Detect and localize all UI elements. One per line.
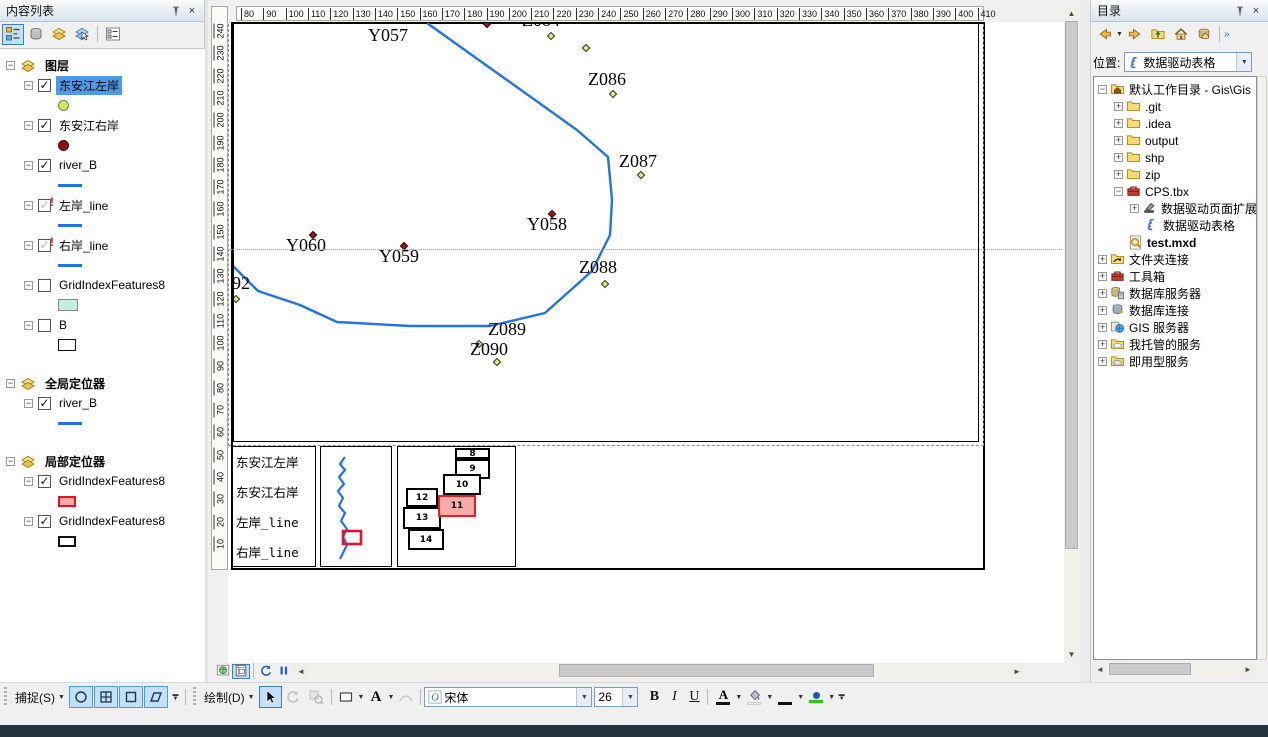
ruler-tick: 360 (866, 8, 884, 20)
vertex-snapping-toggle[interactable] (119, 686, 143, 708)
layer-symbol-row (0, 175, 205, 195)
grid-index-box[interactable]: 891012131411 (397, 446, 516, 567)
chevron-down-icon[interactable]: ▼ (622, 688, 637, 706)
rectangle-tool[interactable] (335, 686, 358, 708)
catalog-item-label[interactable]: 文件夹连接 (1129, 251, 1189, 268)
scroll-up-icon[interactable]: ▲ (1064, 6, 1079, 20)
collapse-icon[interactable]: − (1098, 85, 1107, 94)
grid-index-cell[interactable]: 8 (455, 448, 490, 459)
ruler-tick: 160 (214, 202, 226, 217)
catalog-item-label[interactable]: 即用型服务 (1129, 353, 1189, 370)
catalog-item-label[interactable]: test.mxd (1147, 236, 1196, 250)
zoom-to-selected-tool[interactable] (305, 686, 328, 708)
map-point-label: Y060 (286, 235, 326, 256)
cloud2-icon (1110, 354, 1126, 369)
catalog-item-label[interactable]: CPS.tbx (1145, 185, 1189, 199)
catalog-item[interactable]: +zip (1094, 166, 1256, 183)
grid-index-cell[interactable]: 10 (443, 474, 481, 495)
symbol-blue-line[interactable] (58, 184, 82, 187)
expand-icon[interactable]: + (1098, 323, 1107, 332)
collapse-icon[interactable]: − (24, 321, 33, 330)
map-bottom-bar: ◄ ► (208, 663, 1064, 679)
status-bar (0, 711, 1268, 725)
layout-page[interactable]: Y057Z084Z086Z087Y058Y060Y059Z088092Z089Z… (228, 22, 1064, 663)
svg-text:O: O (432, 693, 440, 704)
layers-group-icon (20, 58, 38, 72)
toc-layer-label[interactable]: 东安江左岸 (56, 76, 122, 95)
toc-group-1[interactable]: − 全局定位器 (0, 373, 205, 393)
folder-link-icon (1110, 252, 1126, 267)
toolbox-icon (1110, 269, 1126, 284)
folder-icon (1126, 150, 1142, 165)
catalog-item[interactable]: +数据驱动页面扩展 (1094, 200, 1256, 217)
toolbar-grip[interactable] (3, 687, 8, 707)
ruler-tick: 110 (214, 313, 226, 328)
toolbar-options-icon[interactable]: ▬▼ (835, 686, 848, 708)
expand-icon[interactable]: + (1098, 289, 1107, 298)
ruler-tick: 130 (214, 269, 226, 284)
collapse-icon[interactable]: − (24, 477, 33, 486)
collapse-icon[interactable]: − (24, 281, 33, 290)
ruler-tick: 220 (214, 68, 226, 83)
symbol-cyan-rect[interactable] (58, 299, 78, 311)
catalog-item-label[interactable]: .git (1145, 100, 1161, 114)
legend-entry: 右岸_line (236, 542, 312, 561)
layer-visibility-checkbox[interactable]: ✓ (38, 475, 51, 488)
catalog-item-label[interactable]: 工具箱 (1129, 268, 1165, 285)
toc-layer-row[interactable]: − ✓右岸_line (0, 235, 205, 255)
collapse-icon[interactable]: − (1114, 187, 1123, 196)
expand-icon[interactable]: + (1098, 272, 1107, 281)
collapse-icon[interactable]: − (6, 457, 15, 466)
ruler-tick: 140 (214, 247, 226, 262)
symbol-pink-rect[interactable] (58, 496, 76, 507)
toolbox-icon (1126, 184, 1142, 199)
catalog-item-label[interactable]: shp (1145, 151, 1164, 165)
ruler-tick: 100 (214, 336, 226, 351)
vertical-ruler: 2402302202102001901801701601501401301201… (211, 6, 228, 570)
map-point-label: 092 (234, 273, 250, 294)
catalog-item-label[interactable]: .idea (1145, 117, 1171, 131)
ruler-tick: 370 (888, 8, 906, 20)
font-color-dropdown-icon[interactable]: ▼ (735, 694, 742, 701)
toc-layer-label[interactable]: 右岸_line (56, 236, 111, 255)
ruler-tick: 70 (214, 403, 226, 418)
toc-layer-label[interactable]: GridIndexFeatures8 (56, 513, 168, 529)
end-snapping-toggle[interactable] (94, 686, 118, 708)
font-name: 宋体 (442, 689, 576, 706)
collapse-icon[interactable]: − (24, 201, 33, 210)
layer-visibility-checkbox[interactable]: ✓ (38, 119, 51, 132)
catalog-panel: 目录 × ▼ » 位置: 数据驱动表格 ▼ −默认工作目录 - Gis\Gis+… (1090, 0, 1268, 682)
expand-icon[interactable]: + (1114, 170, 1123, 179)
symbol-green-dot[interactable] (58, 100, 69, 111)
rotate-tool[interactable] (282, 686, 305, 708)
ruler-tick: 210 (531, 8, 549, 20)
toc-layer-label[interactable]: 东安江右岸 (56, 116, 122, 135)
ruler-tick: 240 (598, 8, 616, 20)
font-color-button[interactable]: A (711, 686, 735, 708)
toc-layer-row[interactable]: − ✓东安江左岸 (0, 75, 205, 95)
marker-color-button[interactable] (804, 686, 828, 708)
horizontal-ruler: 8090100110120130140150160170180190200210… (236, 6, 984, 21)
ruler-tick: 380 (911, 8, 929, 20)
ruler-tick: 200 (509, 8, 527, 20)
up-one-level-button[interactable] (1147, 24, 1169, 45)
catalog-vertical-scrollbar[interactable] (1257, 76, 1267, 660)
catalog-item[interactable]: +数据库服务器 (1094, 285, 1256, 302)
toc-group-label: 局部定位器 (42, 452, 108, 471)
catalog-tree: −默认工作目录 - Gis\Gis+.git+.idea+output+shp+… (1093, 76, 1257, 660)
layer-visibility-checkbox[interactable]: ✓ (38, 239, 51, 252)
ruler-tick: 90 (263, 8, 276, 20)
data-view-button[interactable] (214, 664, 232, 679)
font-size-combo[interactable]: 26 ▼ (594, 687, 638, 707)
italic-button[interactable]: I (664, 687, 684, 707)
toc-header: 内容列表 × (0, 0, 204, 22)
ruler-tick: 230 (214, 46, 226, 61)
ruler-tick: 170 (442, 8, 460, 20)
catalog-item[interactable]: +GIS 服务器 (1094, 319, 1256, 336)
layer-visibility-checkbox[interactable]: ✓ (38, 159, 51, 172)
toc-layer-row[interactable]: − ✓river_B (0, 155, 205, 175)
ruler-tick: 180 (214, 157, 226, 172)
back-button[interactable] (1093, 24, 1115, 45)
layer-symbol-row (0, 135, 205, 155)
catalog-item[interactable]: +数据库连接 (1094, 302, 1256, 319)
chevron-down-icon[interactable]: ▼ (1236, 53, 1251, 71)
collapse-icon[interactable]: − (24, 517, 33, 526)
toc-layer-label[interactable]: river_B (56, 157, 100, 173)
layer-visibility-checkbox[interactable]: ✓ (38, 397, 51, 410)
vscroll-thumb[interactable] (1065, 21, 1078, 549)
legend-box[interactable]: 东安江左岸东安江右岸左岸_line右岸_line (232, 446, 316, 567)
scroll-right-icon[interactable]: ► (1009, 664, 1025, 678)
snapping-menu-button[interactable]: 捕捉(S)▼ (11, 687, 69, 708)
scroll-left-icon[interactable]: ◄ (293, 664, 309, 678)
list-by-drawing-order-button[interactable] (2, 24, 24, 45)
collapse-icon[interactable]: − (24, 81, 33, 90)
db-server-icon (1110, 286, 1126, 301)
collapse-icon[interactable]: − (24, 241, 33, 250)
legend-entry: 东安江左岸 (236, 452, 312, 471)
ruler-tick: 190 (487, 8, 505, 20)
scroll-right-icon[interactable]: ► (1241, 663, 1255, 676)
map-point-label: Z086 (588, 69, 626, 90)
toc-layer-label[interactable]: 左岸_line (56, 196, 111, 215)
layer-symbol-row (0, 413, 205, 433)
db-connect-icon (1110, 303, 1126, 318)
toolbar-options-icon[interactable]: ▬▼ (169, 686, 182, 708)
location-label: 位置: (1093, 54, 1120, 71)
toc-layer-label[interactable]: GridIndexFeatures8 (56, 277, 168, 293)
back-dropdown-icon[interactable]: ▼ (1116, 31, 1123, 38)
expand-icon[interactable]: + (1098, 306, 1107, 315)
drawing-menu-button[interactable]: 绘制(D)▼ (200, 687, 259, 708)
ruler-tick: 230 (576, 8, 594, 20)
expand-icon[interactable]: + (1114, 136, 1123, 145)
expand-icon[interactable]: + (1098, 255, 1107, 264)
pause-drawing-button[interactable] (275, 664, 293, 679)
window-bottom-strip (0, 725, 1268, 737)
map-point-label: Z089 (488, 319, 526, 340)
ruler-tick: 10 (214, 536, 226, 551)
catalog-item[interactable]: −CPS.tbx (1094, 183, 1256, 200)
ruler-tick: 210 (214, 90, 226, 105)
ruler-tick: 180 (464, 8, 482, 20)
ruler-tick: 100 (286, 8, 304, 20)
ruler-tick: 140 (375, 8, 393, 20)
symbol-darkred-dot[interactable] (58, 140, 69, 151)
select-elements-tool[interactable] (259, 686, 282, 708)
ruler-tick: 190 (214, 135, 226, 150)
catalog-item-label[interactable]: 数据库服务器 (1129, 285, 1201, 302)
font-combo[interactable]: O 宋体 ▼ (424, 687, 592, 707)
close-icon[interactable]: × (1248, 3, 1264, 19)
toc-panel: 内容列表 × − 图层− ✓东安江左岸− ✓东安江右岸− ✓river_B− ✓… (0, 0, 205, 682)
collapse-icon[interactable]: − (24, 121, 33, 130)
grid-index-cell[interactable]: 13 (403, 507, 441, 529)
ruler-tick: 340 (821, 8, 839, 20)
folder-icon (1126, 167, 1142, 182)
expand-icon[interactable]: + (1098, 340, 1107, 349)
curve-tool[interactable] (394, 686, 417, 708)
catalog-item[interactable]: −默认工作目录 - Gis\Gis (1094, 81, 1256, 98)
text-tool-dropdown-icon[interactable]: ▼ (387, 694, 394, 701)
symbol-black-rect[interactable] (58, 536, 76, 547)
scroll-down-icon[interactable]: ▼ (1064, 647, 1079, 661)
toc-layer-row[interactable]: − B (0, 315, 205, 335)
ruler-tick: 250 (620, 8, 638, 20)
point-snapping-toggle[interactable] (69, 686, 93, 708)
collapse-icon[interactable]: − (6, 61, 15, 70)
options-button[interactable] (102, 24, 124, 45)
collapse-icon[interactable]: − (24, 161, 33, 170)
toc-layer-row[interactable]: − ✓GridIndexFeatures8 (0, 511, 205, 531)
toc-group-0[interactable]: − 图层 (0, 55, 205, 75)
toc-layer-row[interactable]: − ✓东安江右岸 (0, 115, 205, 135)
panel-splitter-right[interactable] (1080, 0, 1090, 682)
underline-button[interactable]: U (684, 687, 704, 707)
ruler-tick: 150 (214, 224, 226, 239)
catalog-item-label[interactable]: 数据库连接 (1129, 302, 1189, 319)
draw-snapping-toolbar: 捕捉(S)▼ ▬▼ 绘制(D)▼ ▼ A ▼ O 宋体 ▼ 26 ▼ B I U… (0, 682, 1268, 711)
catalog-item[interactable]: +.idea (1094, 115, 1256, 132)
marker-color-dropdown-icon[interactable]: ▼ (828, 694, 835, 701)
line-color-dropdown-icon[interactable]: ▼ (797, 694, 804, 701)
home-button[interactable] (1170, 24, 1192, 45)
toc-layer-label[interactable]: GridIndexFeatures8 (56, 473, 168, 489)
ruler-tick: 160 (420, 8, 438, 20)
map-point-label: Y058 (527, 214, 567, 235)
layer-symbol-row (0, 335, 205, 355)
catalog-item[interactable]: +工具箱 (1094, 268, 1256, 285)
symbol-white-rect[interactable] (58, 339, 76, 351)
layer-symbol-row (0, 215, 205, 235)
map-point-label: Z087 (619, 151, 657, 172)
layer-symbol-row (0, 255, 205, 275)
ruler-tick: 90 (214, 358, 226, 373)
ruler-tick: 220 (553, 8, 571, 20)
grid-index-cell[interactable]: 11 (438, 495, 476, 517)
catalog-item[interactable]: +output (1094, 132, 1256, 149)
folder-home-icon (1110, 82, 1126, 97)
ruler-tick: 150 (397, 8, 415, 20)
scroll-icon (1144, 218, 1160, 233)
ruler-tick: 260 (643, 8, 661, 20)
grid-index-cell[interactable]: 14 (408, 529, 444, 550)
pin-icon[interactable] (168, 3, 184, 19)
ruler-tick: 200 (214, 113, 226, 128)
toc-group-label: 全局定位器 (42, 374, 108, 393)
ruler-tick: 310 (754, 8, 772, 20)
ruler-tick: 170 (214, 180, 226, 195)
grid-index-cell[interactable]: 12 (406, 488, 438, 507)
catalog-item-label[interactable]: 我托管的服务 (1129, 336, 1201, 353)
toc-layer-label[interactable]: river_B (56, 395, 100, 411)
catalog-item[interactable]: +.git (1094, 98, 1256, 115)
catalog-item-label[interactable]: 数据驱动页面扩展 (1161, 200, 1257, 217)
location-value: 数据驱动表格 (1143, 54, 1236, 71)
expand-icon[interactable]: + (1098, 357, 1107, 366)
location-combo[interactable]: 数据驱动表格 ▼ (1124, 52, 1252, 72)
rectangle-tool-dropdown-icon[interactable]: ▼ (358, 694, 365, 701)
forward-button[interactable] (1124, 24, 1146, 45)
toc-tree: − 图层− ✓东安江左岸− ✓东安江右岸− ✓river_B− ✓左岸_line… (0, 48, 205, 682)
cloud-icon (1110, 337, 1126, 352)
symbol-blue-line[interactable] (58, 422, 82, 425)
catalog-item[interactable]: +即用型服务 (1094, 353, 1256, 370)
folder-icon (1126, 133, 1142, 148)
list-by-visibility-button[interactable] (48, 24, 70, 45)
ruler-tick: 300 (732, 8, 750, 20)
ruler-tick: 120 (330, 8, 348, 20)
line-color-button[interactable] (773, 686, 797, 708)
ruler-tick: 130 (353, 8, 371, 20)
scroll-icon (1127, 56, 1140, 69)
layer-visibility-checkbox[interactable]: ✓ (38, 79, 51, 92)
catalog-toolbar: ▼ » (1091, 22, 1268, 46)
symbol-blue-line[interactable] (58, 224, 82, 227)
hscroll-thumb[interactable] (559, 664, 874, 677)
ruler-tick: 320 (777, 8, 795, 20)
expand-icon[interactable]: + (1130, 204, 1139, 213)
ruler-tick: 350 (844, 8, 862, 20)
ruler-tick: 410 (978, 8, 996, 20)
default-gdb-button[interactable] (1193, 24, 1215, 45)
toc-title: 内容列表 (4, 2, 168, 19)
scroll-left-icon[interactable]: ◄ (1093, 663, 1107, 676)
chevron-down-icon[interactable]: ▼ (576, 688, 591, 706)
layer-visibility-checkbox[interactable]: ✓ (38, 515, 51, 528)
map-content[interactable]: Y057Z084Z086Z087Y058Y060Y059Z088092Z089Z… (234, 23, 977, 441)
catalog-item[interactable]: 数据驱动表格 (1094, 217, 1256, 234)
refresh-view-button[interactable] (257, 664, 275, 679)
toc-layer-row[interactable]: − ✓左岸_line (0, 195, 205, 215)
catalog-item[interactable]: +文件夹连接 (1094, 251, 1256, 268)
expand-icon[interactable]: + (1114, 102, 1123, 111)
catalog-item-label[interactable]: GIS 服务器 (1129, 319, 1189, 336)
ruler-tick: 80 (241, 8, 254, 20)
expand-icon[interactable]: + (1114, 153, 1123, 162)
expand-icon[interactable]: + (1114, 119, 1123, 128)
toc-layer-row[interactable]: − ✓river_B (0, 393, 205, 413)
text-tool[interactable]: A (364, 686, 387, 708)
map-point-label: Y057 (368, 25, 408, 46)
layers-group-icon (20, 376, 38, 390)
catalog-item-label[interactable]: 数据驱动表格 (1163, 217, 1235, 234)
bold-button[interactable]: B (644, 687, 664, 707)
catalog-item[interactable]: test.mxd (1094, 234, 1256, 251)
ruler-tick: 30 (214, 492, 226, 507)
folder-icon (1126, 99, 1142, 114)
folder-icon (1126, 116, 1142, 131)
layer-symbol-row (0, 531, 205, 551)
hscroll-thumb[interactable] (1109, 663, 1191, 675)
toc-toolbar (0, 22, 204, 46)
list-by-selection-button[interactable] (71, 24, 93, 45)
toc-layer-row[interactable]: − ✓GridIndexFeatures8 (0, 471, 205, 491)
catalog-horizontal-scrollbar[interactable]: ◄ ► (1093, 662, 1257, 676)
cyan-guide-line (230, 249, 1062, 250)
ruler-tick: 40 (214, 470, 226, 485)
ruler-tick: 110 (308, 8, 325, 20)
legend-entry: 左岸_line (236, 512, 312, 531)
toc-group-label: 图层 (42, 56, 72, 75)
layer-visibility-checkbox[interactable] (38, 279, 51, 292)
ruler-tick: 240 (214, 24, 226, 39)
catalog-item-label[interactable]: output (1145, 134, 1178, 148)
edge-snapping-toggle[interactable] (144, 686, 168, 708)
ruler-tick: 20 (214, 514, 226, 529)
ruler-tick: 60 (214, 425, 226, 440)
ruler-tick: 120 (214, 291, 226, 306)
symbol-blue-line[interactable] (58, 264, 82, 267)
font-size-value: 26 (598, 690, 622, 704)
map-window: 8090100110120130140150160170180190200210… (208, 0, 1080, 682)
catalog-item[interactable]: +shp (1094, 149, 1256, 166)
catalog-item-label[interactable]: zip (1145, 168, 1160, 182)
pin-icon[interactable] (1232, 3, 1248, 19)
list-by-source-button[interactable] (25, 24, 47, 45)
map-vertical-scrollbar[interactable]: ▲ ▼ (1064, 6, 1079, 661)
toc-layer-label[interactable]: B (56, 317, 70, 333)
layer-visibility-checkbox[interactable]: ✓ (38, 199, 51, 212)
layer-symbol-row (0, 295, 205, 315)
layer-visibility-checkbox[interactable] (38, 319, 51, 332)
close-icon[interactable]: × (184, 3, 200, 19)
hammer-icon (1142, 201, 1158, 216)
ruler-tick: 330 (799, 8, 817, 20)
fill-color-button[interactable] (742, 686, 766, 708)
toc-group-2[interactable]: − 局部定位器 (0, 451, 205, 471)
layout-view-button[interactable] (232, 664, 250, 679)
catalog-item[interactable]: +我托管的服务 (1094, 336, 1256, 353)
collapse-icon[interactable]: − (24, 399, 33, 408)
gis-icon (1110, 320, 1126, 335)
layers-group-icon (20, 454, 38, 468)
ruler-tick: 390 (933, 8, 951, 20)
collapse-icon[interactable]: − (6, 379, 15, 388)
overview-map-box[interactable] (320, 446, 392, 567)
toolbar-overflow-icon[interactable]: » (1224, 29, 1230, 40)
map-point-label: Z088 (579, 257, 617, 278)
ruler-tick: 400 (955, 8, 973, 20)
fill-color-dropdown-icon[interactable]: ▼ (766, 694, 773, 701)
toc-layer-row[interactable]: − GridIndexFeatures8 (0, 275, 205, 295)
toolbar-grip[interactable] (192, 687, 197, 707)
catalog-item-label[interactable]: 默认工作目录 - Gis\Gis (1129, 81, 1251, 98)
